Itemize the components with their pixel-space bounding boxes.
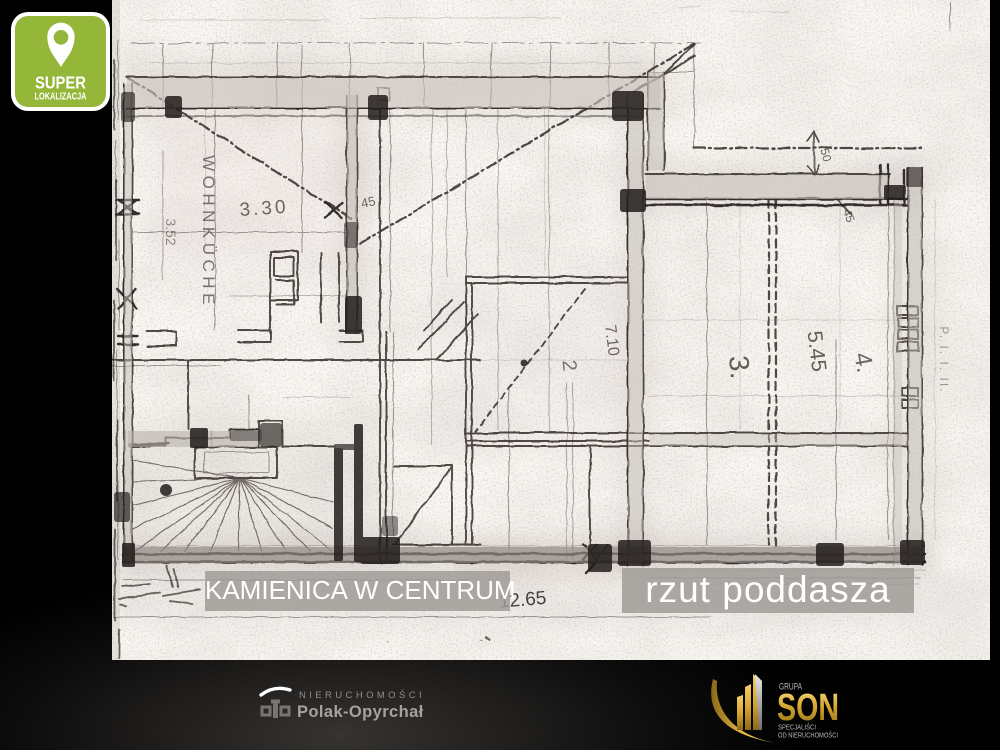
svg-text:2: 2 [558,359,581,372]
svg-text:OD NIERUCHOMOŚCI: OD NIERUCHOMOŚCI [778,731,838,740]
svg-text:3.52: 3.52 [163,218,179,245]
svg-text:3.: 3. [723,354,756,380]
svg-text:NIERUCHOMOŚCI: NIERUCHOMOŚCI [299,689,425,701]
svg-text:3.30: 3.30 [239,197,289,221]
svg-text:WOHNKÜCHE: WOHNKÜCHE [199,155,218,309]
svg-text:P. I. I. II.: P. I. I. II. [937,326,951,393]
svg-text:Polak-Opyrchał: Polak-Opyrchał [297,703,424,721]
svg-text:45: 45 [360,193,377,211]
svg-text:LOKALIZACJA: LOKALIZACJA [35,92,87,103]
svg-text:SUPER: SUPER [35,73,86,93]
